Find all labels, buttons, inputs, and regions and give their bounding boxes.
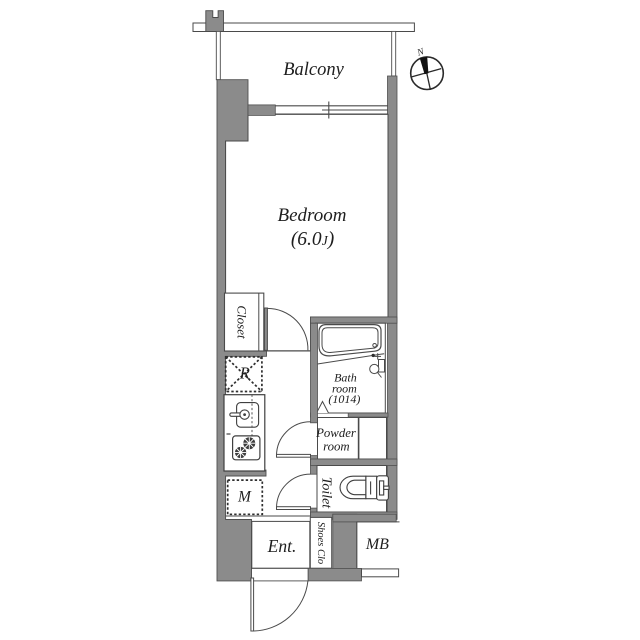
svg-text:(6.0J): (6.0J) [291, 229, 334, 250]
svg-text:room: room [323, 440, 350, 454]
svg-text:Closet: Closet [235, 305, 250, 339]
svg-text:Shoes Clo: Shoes Clo [315, 522, 326, 564]
svg-text:R: R [239, 364, 250, 383]
svg-text:MB: MB [365, 536, 389, 553]
svg-text:M: M [237, 489, 252, 506]
svg-text:Ent.: Ent. [267, 536, 297, 556]
svg-text:Powder: Powder [315, 426, 357, 440]
svg-text:Bedroom: Bedroom [278, 205, 347, 226]
svg-text:Toilet: Toilet [319, 477, 334, 509]
svg-text:Balcony: Balcony [283, 60, 344, 80]
svg-text:(1014): (1014) [328, 392, 360, 406]
